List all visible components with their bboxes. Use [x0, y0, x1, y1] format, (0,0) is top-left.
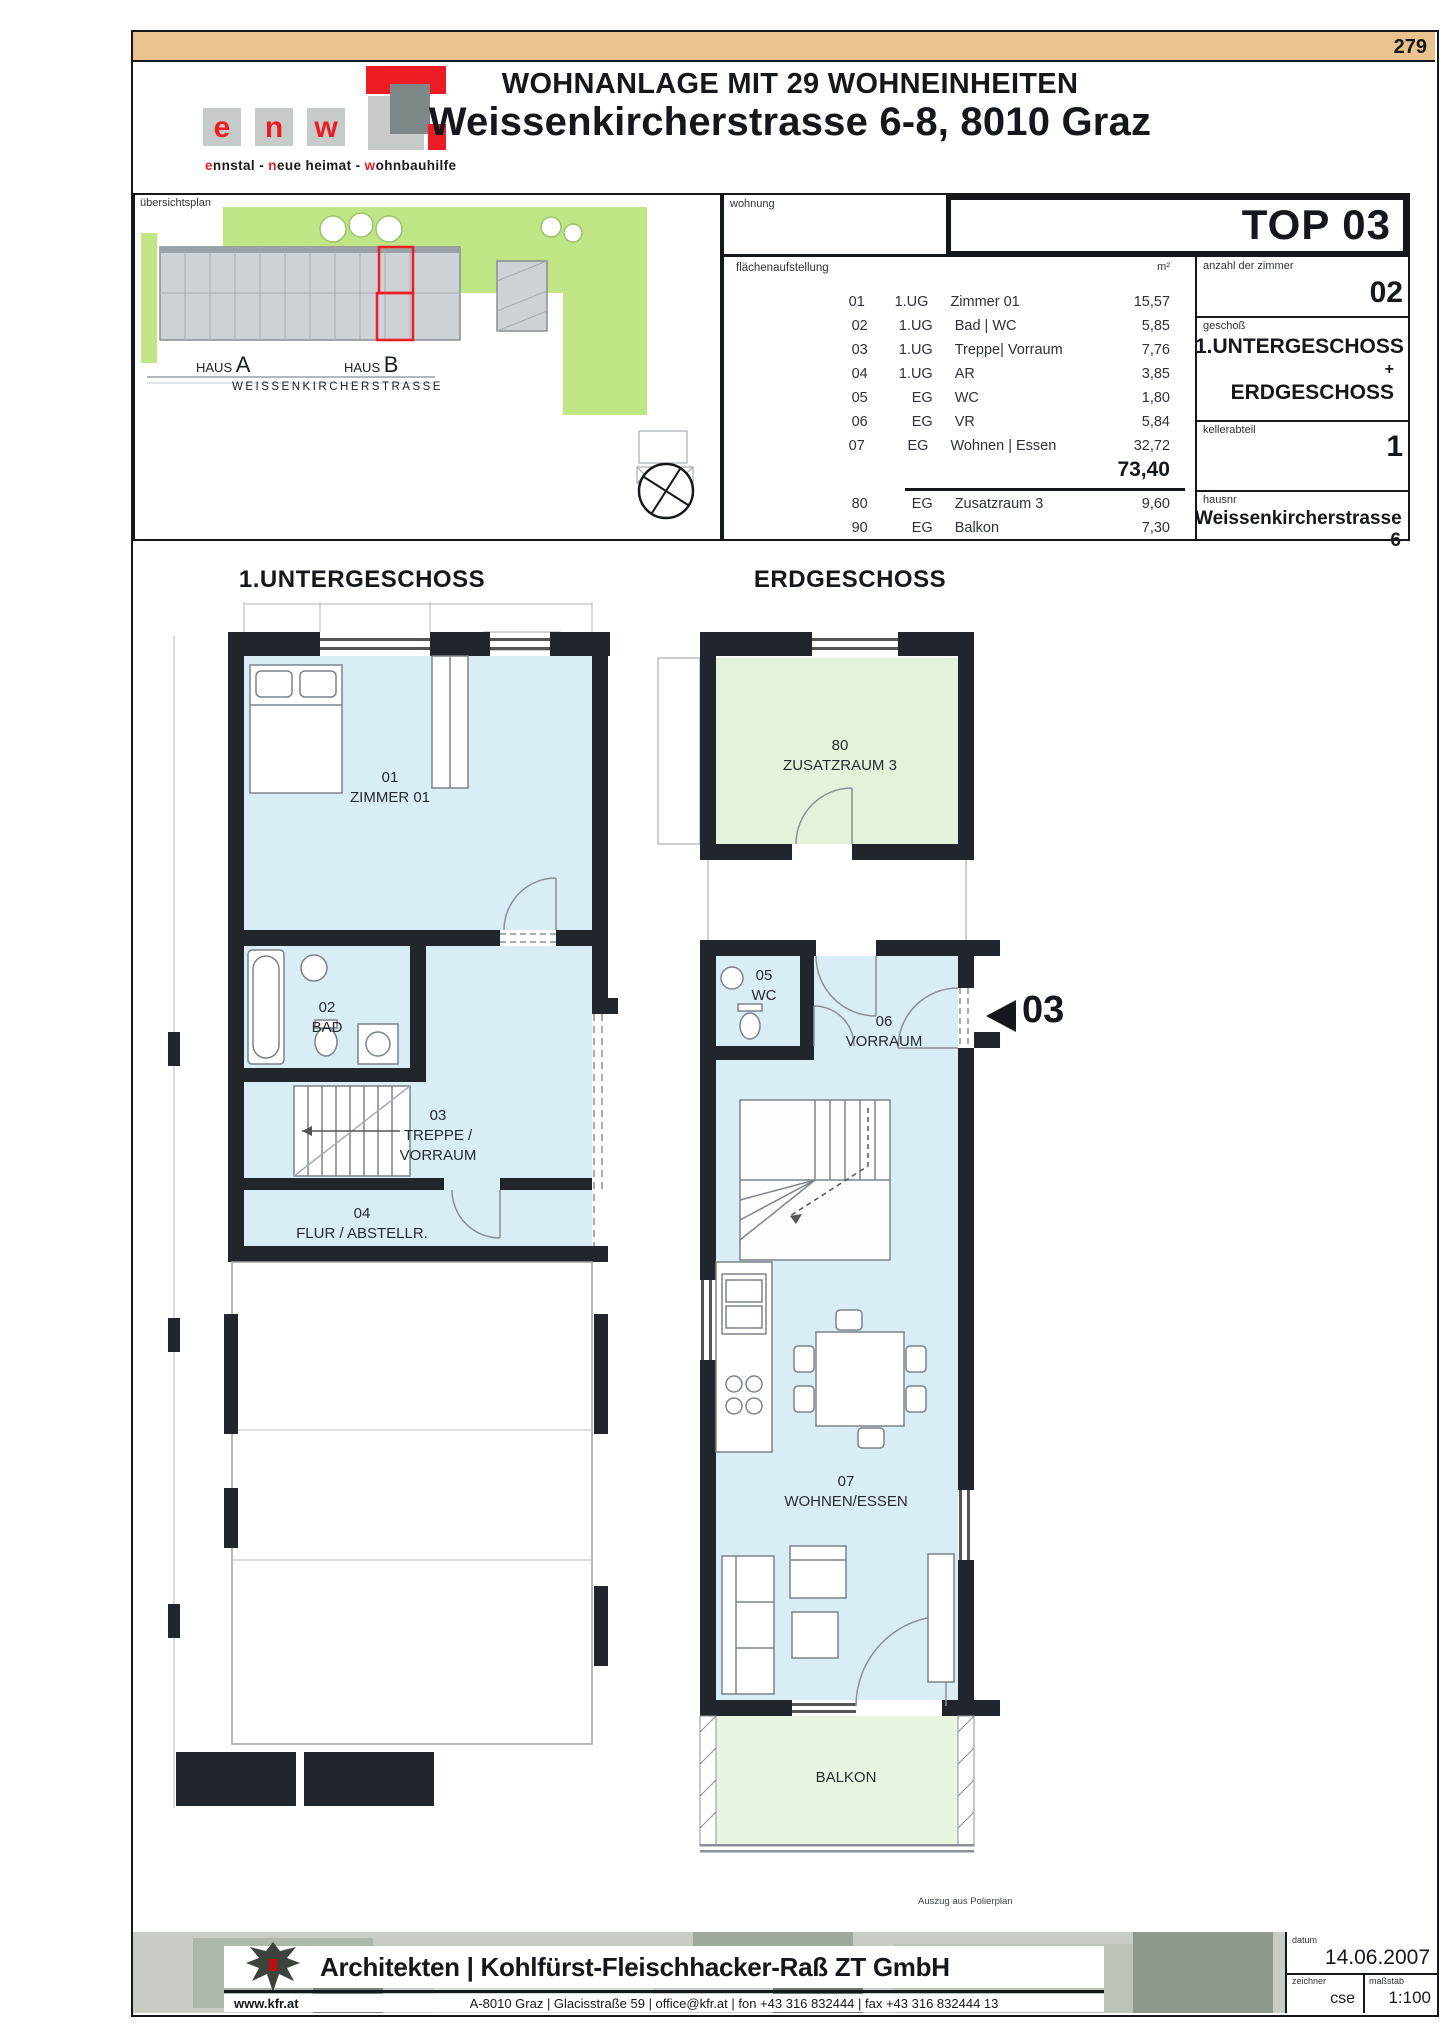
table-row: 90EGBalkon7,30 — [722, 516, 1170, 540]
total-divider — [905, 488, 1185, 491]
table-row: 05EGWC1,80 — [722, 386, 1170, 410]
room-label-treppe: 03TREPPE /VORRAUM — [400, 1106, 477, 1166]
table-row: 011.UGZimmer 0115,57 — [722, 290, 1170, 314]
room-label-bad: 02BAD — [312, 998, 343, 1038]
wardrobe-icon — [432, 656, 468, 788]
datum-label: datum — [1292, 1935, 1317, 1945]
table-row: 041.UGAR3,85 — [722, 362, 1170, 386]
stairs — [294, 1086, 410, 1176]
crest-icon — [244, 1938, 302, 1996]
details-line3 — [1195, 490, 1408, 492]
website-link: www.kfr.at — [224, 1996, 364, 2011]
titleblock-line — [1285, 1973, 1437, 1975]
geschoss-label: geschoß — [1203, 320, 1245, 332]
room-label-wc: 05WC — [752, 966, 777, 1006]
zeichner-value: cse — [1295, 1990, 1355, 2008]
geschoss-value: 1.UNTERGESCHOSS + ERDGESCHOSS — [1195, 334, 1408, 406]
table-row: 07EGWohnen | Essen32,72 — [722, 434, 1170, 458]
sofa — [722, 1556, 774, 1694]
haus-a-label: HAUS A — [196, 352, 250, 378]
table-label: flächenaufstellung — [736, 262, 829, 274]
floorplan-eg — [630, 596, 1110, 1866]
plan-sheet: 279 e n w ennstal - neue heimat - wohnba… — [0, 0, 1446, 2044]
room-label-wohnen: 07WOHNEN/ESSEN — [784, 1472, 907, 1512]
area-table: 011.UGZimmer 0115,57 021.UGBad | WC5,85 … — [722, 290, 1170, 458]
sink-icon — [301, 955, 327, 981]
bed-icon — [250, 665, 342, 793]
logo-tagline: ennstal - neue heimat - wohnbauhilfe — [205, 158, 456, 173]
room-label-balkon: BALKON — [816, 1768, 877, 1788]
marker-arrow-icon — [986, 1000, 1016, 1032]
table-row: 021.UGBad | WC5,85 — [722, 314, 1170, 338]
area-table-extra: 80EGZusatzraum 39,60 90EGBalkon7,30 — [722, 492, 1170, 540]
coffee-table — [792, 1612, 838, 1658]
room-label-zusatzraum: 80ZUSATZRAUM 3 — [783, 736, 897, 776]
logo-letter-e: e — [203, 108, 241, 146]
heading-untergeschoss: 1.UNTERGESCHOSS — [239, 566, 485, 594]
hausnr-value: Weissenkircherstrasse 6 — [1195, 508, 1401, 552]
neighbor-below — [176, 1262, 608, 1806]
unit-label: m² — [1100, 261, 1170, 273]
kitchen-counter — [716, 1262, 772, 1452]
page-number: 279 — [1394, 36, 1427, 58]
table-row: 031.UGTreppe| Vorraum7,76 — [722, 338, 1170, 362]
massstab-value: 1:100 — [1369, 1988, 1431, 2008]
title-line1: WOHNANLAGE MIT 29 WOHNEINHEITEN — [440, 68, 1140, 101]
compass-icon — [639, 464, 693, 518]
top-number: TOP 03 — [946, 195, 1408, 256]
wc-sink-icon — [721, 967, 743, 989]
wc-toilet-icon — [738, 1004, 762, 1039]
washer-icon — [358, 1024, 398, 1064]
massstab-label: maßstab — [1369, 1976, 1404, 1986]
unit-marker: 03 — [1022, 990, 1064, 1030]
titleblock-divider — [1363, 1973, 1365, 2013]
wohnung-label: wohnung — [730, 198, 775, 210]
title-line2: Weissenkircherstrasse 6-8, 8010 Graz — [420, 100, 1160, 145]
hausnr-label: hausnr — [1203, 494, 1237, 506]
table-row: 80EGZusatzraum 39,60 — [722, 492, 1170, 516]
logo-letter-n: n — [255, 108, 293, 146]
details-line2 — [1195, 420, 1408, 422]
bathtub-icon — [248, 950, 284, 1064]
room-label-vorraum: 06VORRAUM — [846, 1012, 923, 1052]
firm-band: Architekten | Kohlfürst-Fleischhacker-Ra… — [224, 1946, 1104, 1988]
site-plan-label: übersichtsplan — [140, 197, 211, 209]
logo-letter-w: w — [307, 108, 345, 146]
top-bar: 279 — [133, 32, 1435, 62]
area-total: 73,40 — [722, 458, 1170, 482]
details-line1 — [1195, 316, 1408, 318]
footer-address: A-8010 Graz | Glacisstraße 59 | office@k… — [364, 1996, 1104, 2011]
table-row: 06EGVR5,84 — [722, 410, 1170, 434]
armchair — [790, 1546, 846, 1598]
haus-b-label: HAUS B — [344, 352, 398, 378]
datum-value: 14.06.2007 — [1290, 1946, 1430, 1970]
stairs — [740, 1100, 890, 1260]
zimmer-count-label: anzahl der zimmer — [1203, 260, 1293, 272]
room-label-flur: 04FLUR / ABSTELLR. — [296, 1204, 428, 1244]
plan-note: Auszug aus Polierplan — [918, 1896, 1013, 1907]
heading-erdgeschoss: ERDGESCHOSS — [754, 566, 946, 594]
connector-lines — [708, 860, 966, 940]
zeichner-label: zeichner — [1292, 1976, 1326, 1986]
footer-strip: www.kfr.at A-8010 Graz | Glacisstraße 59… — [224, 1994, 1104, 2012]
keller-value: 1 — [1203, 430, 1417, 464]
room-label-zimmer01: 01ZIMMER 01 — [350, 768, 430, 808]
firm-name: Architekten | Kohlfürst-Fleischhacker-Ra… — [320, 1952, 950, 1983]
sideboard — [928, 1554, 954, 1682]
street-label: WEISSENKIRCHERSTRASSE — [232, 381, 443, 393]
zimmer-count-value: 02 — [1203, 276, 1417, 310]
footer-rule — [224, 1990, 1104, 1993]
